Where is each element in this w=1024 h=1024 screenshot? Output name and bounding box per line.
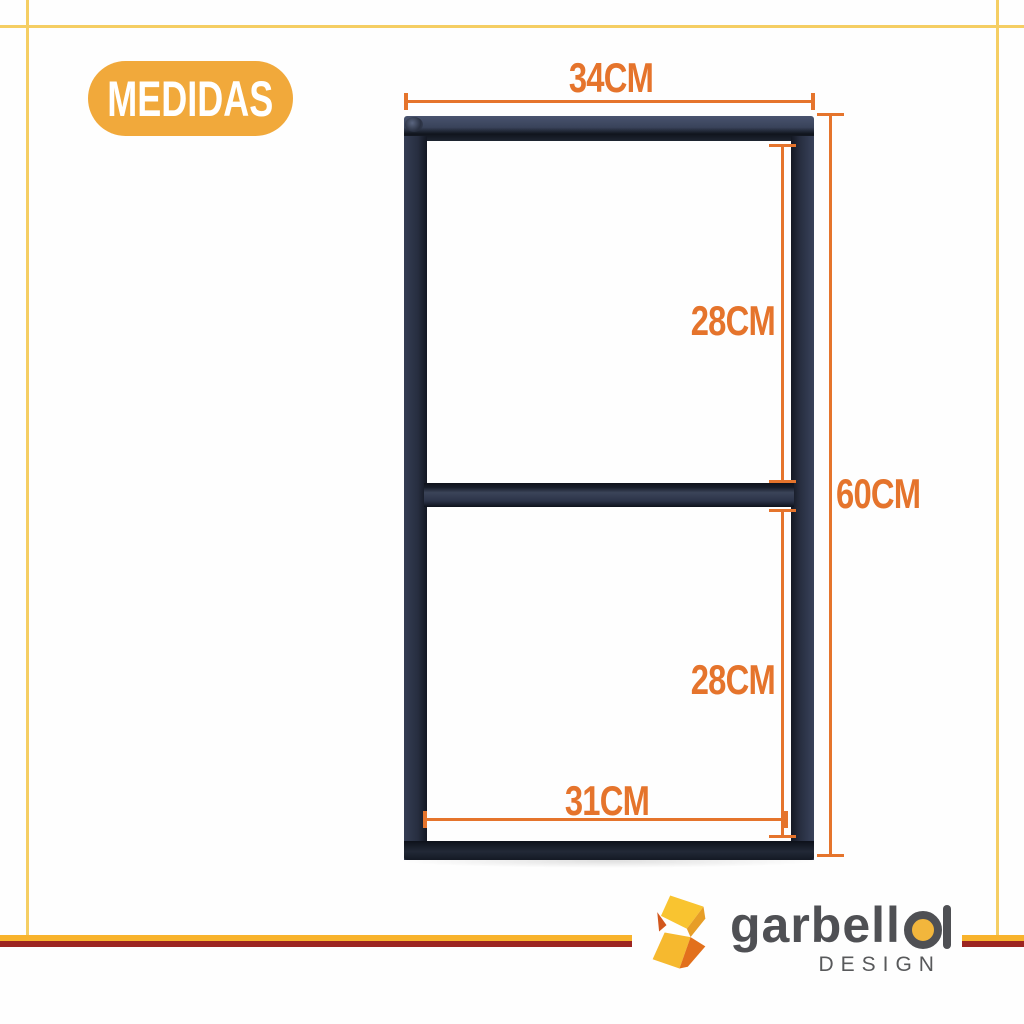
frame-weld-mark bbox=[405, 117, 423, 132]
frame-right-bar bbox=[791, 136, 814, 860]
medidas-badge: MEDIDAS bbox=[88, 61, 293, 136]
dim-line-lower-section bbox=[781, 510, 784, 837]
frame-bottom-bar bbox=[404, 841, 814, 860]
medidas-badge-label: MEDIDAS bbox=[107, 74, 273, 124]
product-dimensions-image: MEDIDAS 34CM 28CM 60CM 28CM 31CM garbell bbox=[0, 0, 1024, 1024]
metal-frame bbox=[404, 116, 814, 860]
dim-line-upper-section bbox=[781, 145, 784, 482]
garbella-logo-icon bbox=[648, 886, 722, 978]
dim-line-total-height bbox=[829, 114, 832, 856]
brand-logo: garbell a DESIGN bbox=[648, 886, 942, 978]
dim-label-total-height: 60CM bbox=[836, 473, 920, 515]
dim-label-lower-section: 28CM bbox=[650, 659, 775, 701]
brand-a-stem bbox=[943, 905, 951, 949]
dim-label-upper-section: 28CM bbox=[650, 300, 775, 342]
border-line-right bbox=[996, 0, 999, 937]
border-line-top bbox=[0, 25, 1024, 28]
frame-top-bar bbox=[404, 116, 814, 141]
brand-tagline: DESIGN bbox=[730, 954, 942, 975]
brand-name-prefix: garbell bbox=[730, 900, 901, 950]
brand-name: garbell a bbox=[730, 900, 942, 950]
dim-label-bottom-width: 31CM bbox=[529, 780, 685, 822]
brand-text-block: garbell a DESIGN bbox=[730, 900, 942, 975]
border-line-left bbox=[26, 0, 29, 936]
dim-label-top-width: 34CM bbox=[533, 57, 689, 99]
brand-a-circle bbox=[904, 911, 942, 949]
frame-middle-crossbar bbox=[424, 483, 794, 507]
brand-name-terminal-a: a bbox=[904, 911, 942, 949]
